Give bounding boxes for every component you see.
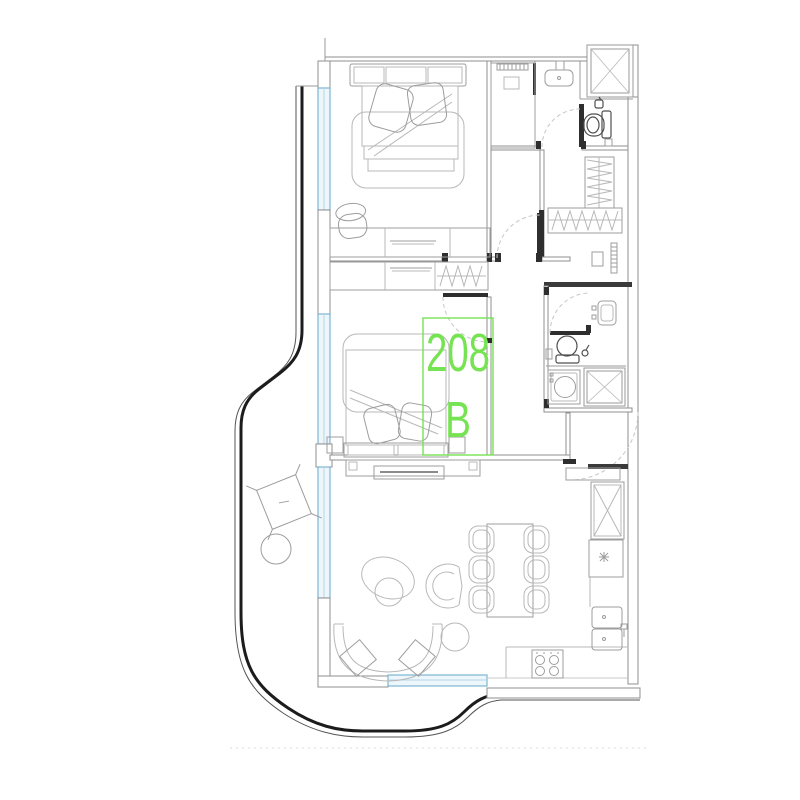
hall-cabinet bbox=[592, 252, 603, 266]
fridge-shaft bbox=[591, 482, 624, 539]
door-bathroom-1 bbox=[542, 104, 584, 147]
bathroom-sink bbox=[545, 61, 573, 86]
toilet bbox=[584, 111, 612, 146]
entrance-hall bbox=[548, 157, 622, 273]
door-bathroom-2 bbox=[550, 293, 590, 335]
side-table bbox=[441, 623, 469, 651]
double-bed bbox=[350, 64, 466, 188]
entrance-threshold bbox=[611, 243, 617, 273]
dining-chairs bbox=[469, 526, 549, 613]
dining-chair bbox=[524, 526, 549, 553]
duct-shaft bbox=[587, 45, 633, 97]
cooktop-symbol bbox=[599, 552, 609, 562]
stove bbox=[532, 650, 563, 678]
kitchen-cabinet bbox=[566, 468, 620, 480]
bathroom-sink bbox=[592, 301, 616, 325]
bedroom-1 bbox=[330, 64, 490, 257]
kitchen-sink bbox=[592, 607, 627, 650]
unit-section: B bbox=[445, 391, 471, 448]
vent-hatch bbox=[500, 64, 524, 70]
washing-machine bbox=[548, 370, 580, 404]
floor-plan: 208 B bbox=[0, 0, 800, 800]
tv-unit bbox=[346, 460, 480, 479]
door-bedroom-1 bbox=[497, 213, 542, 258]
dining-chair bbox=[469, 556, 494, 583]
dining-chair bbox=[469, 586, 494, 613]
balcony-stool bbox=[261, 534, 291, 564]
armchair bbox=[335, 202, 370, 240]
living-room bbox=[334, 460, 549, 681]
toilet-brush-icon bbox=[582, 345, 589, 356]
dining-chair bbox=[524, 586, 549, 613]
dresser bbox=[330, 228, 490, 257]
floor-plan-page: 208 B bbox=[0, 0, 800, 800]
balcony bbox=[246, 464, 322, 564]
wardrobe-cabinet bbox=[491, 63, 535, 148]
lounge-chair bbox=[426, 564, 462, 608]
balcony-table bbox=[246, 464, 322, 540]
closet-vertical bbox=[585, 157, 614, 208]
sofa-cushion bbox=[399, 640, 436, 677]
unit-label[interactable]: 208 B bbox=[423, 318, 493, 455]
dining-chair bbox=[469, 526, 494, 553]
duct-shaft bbox=[584, 368, 625, 406]
bathroom-2 bbox=[546, 301, 625, 406]
closet-horizontal bbox=[548, 208, 622, 233]
unit-number: 208 bbox=[426, 323, 490, 383]
pillow bbox=[367, 82, 448, 135]
pillow bbox=[362, 402, 433, 446]
kitchen-counter bbox=[506, 540, 628, 678]
toilet bbox=[556, 336, 579, 363]
wardrobe bbox=[330, 262, 488, 290]
door-living-room bbox=[563, 412, 638, 480]
pouf-chair bbox=[356, 550, 420, 606]
dining-chair bbox=[524, 556, 549, 583]
sofa bbox=[334, 624, 442, 681]
